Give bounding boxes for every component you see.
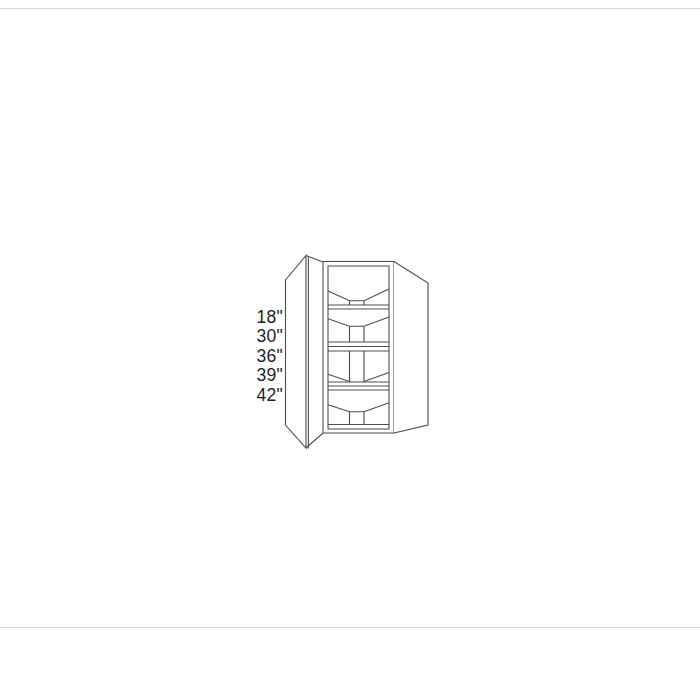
cabinet-line-drawing	[0, 0, 700, 700]
corner-wall-cabinet-figure: 18" 30" 36" 39" 42"	[0, 0, 700, 700]
door-face	[286, 256, 307, 449]
cabinet-front-frame	[323, 262, 394, 434]
height-option-39: 39"	[240, 366, 283, 385]
frame-outer	[323, 262, 394, 434]
cabinet-lines	[286, 256, 429, 449]
height-option-36: 36"	[240, 347, 283, 366]
height-option-18: 18"	[240, 308, 283, 327]
cabinet-door-open	[286, 256, 324, 449]
height-option-42: 42"	[240, 386, 283, 405]
bottom-border-rule	[0, 627, 700, 628]
product-image-canvas: 18" 30" 36" 39" 42"	[0, 0, 700, 700]
height-options-list: 18" 30" 36" 39" 42"	[240, 308, 283, 405]
height-option-30: 30"	[240, 327, 283, 346]
cabinet-right-side-panel	[394, 262, 428, 434]
